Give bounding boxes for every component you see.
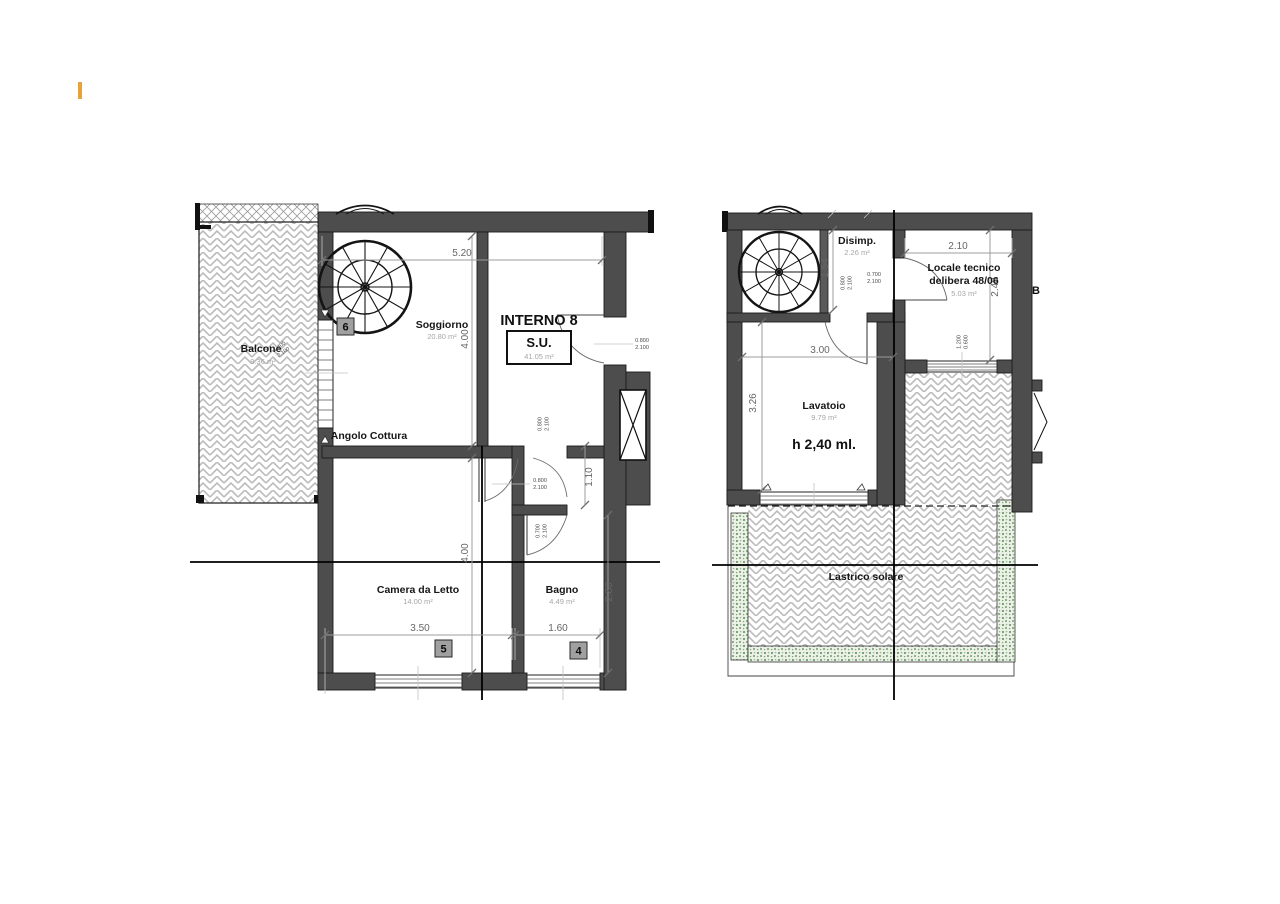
wall-top-right-plan [727,213,1032,230]
wall-camera-bagno [512,515,524,673]
wall-lavatoio-right [877,322,905,505]
wall-locale-bottom-2 [997,360,1012,373]
svg-text:5: 5 [440,644,446,656]
room-area-lavatoio: 9.79 m² [811,413,837,422]
svg-text:0.800: 0.800 [635,338,649,344]
neighbor-balcony-sliver [199,204,318,222]
dim-label-camera-width: 3.50 [410,623,430,634]
unit-title: INTERNO 8 [500,313,577,329]
wall-lavatoio-bottom-2 [868,490,877,505]
camera-window [375,666,462,700]
dim-label-bagno-height: 2.80 [604,582,615,602]
su-area: 41.05 m² [524,352,554,361]
svg-text:2.100: 2.100 [635,345,649,351]
planter-bottom [748,646,998,662]
room-area-disimp: 2.26 m² [844,248,870,257]
plan-upper-level: 2.10 2.40 1.54 3.00 3.26 Disimp. 2.26 m²… [712,207,1047,701]
wall-stairroom-bottom [727,313,830,322]
svg-text:0.700: 0.700 [867,272,881,278]
plan-interno-8: 5.20 4.00 4.00 3.50 1.60 1.10 2.80 Balco… [190,203,660,700]
room-label-bagno: Bagno [546,584,579,596]
svg-text:0.800: 0.800 [533,478,547,484]
svg-text:0.800: 0.800 [841,276,847,290]
badge-6: 6 [337,318,354,335]
room-area-soggiorno: 20.80 m² [427,332,457,341]
svg-text:0.600: 0.600 [964,335,970,349]
wall-bagno-top [512,505,567,515]
terrace-hatch-upper [905,373,1012,505]
svg-text:1.200: 1.200 [957,335,963,349]
room-label-soggiorno: Soggiorno [416,319,469,331]
planter-left [731,513,748,660]
dim-label-corridor: 1.10 [584,467,595,487]
room-label-lastrico: Lastrico solare [829,571,904,583]
room-area-bagno: 4.49 m² [549,597,575,606]
dim-label-lavatoio-height: 3.26 [748,393,759,413]
floorplan-page: 5.20 4.00 4.00 3.50 1.60 1.10 2.80 Balco… [0,0,1280,904]
room-area-locale: 5.03 m² [951,289,977,298]
dim-label-locale-width: 2.10 [948,241,968,252]
dimensions-left [318,232,612,694]
door-label-1: 0.800 2.100 [538,417,551,431]
door-label-entry: 0.800 2.100 [594,338,649,351]
door-label-r1: 0.800 2.100 [841,276,854,290]
neighbor-cut-elements [1032,380,1047,463]
wall-soggiorno-entry [477,232,488,446]
wall-kitchen-bedroom [322,446,512,458]
dim-label-camera-height: 4.00 [460,543,471,563]
badge-4: 4 [570,642,587,659]
svg-text:2.100: 2.100 [867,279,881,285]
svg-text:2.100: 2.100 [543,524,549,538]
room-label-camera: Camera da Letto [377,584,459,596]
door-label-3: 0.700 2.100 [536,524,549,538]
neighbor-room-label: B [1032,285,1040,297]
window-label-r3: 1.200 0.600 [957,335,970,349]
wall-left-lower [318,428,333,673]
dim-label-disimp-height: 1.54 [820,258,831,278]
door-label-r2: 0.700 2.100 [867,272,881,285]
svg-text:0.800: 0.800 [538,417,544,431]
room-label-locale: Locale tecnico [928,262,1001,274]
wall-right-right-plan [1012,230,1032,512]
wall-right-upper [604,232,626,317]
floorplan-canvas: 5.20 4.00 4.00 3.50 1.60 1.10 2.80 Balco… [0,0,1280,904]
wall-lavatoio-bottom-1 [727,490,760,505]
svg-text:2.100: 2.100 [533,485,547,491]
lavatoio-height-note: h 2,40 ml. [792,436,856,452]
badge-5: 5 [435,640,452,657]
dim-label-lavatoio-width: 3.00 [810,345,830,356]
room-label-angolo-cottura: Angolo Cottura [331,430,408,442]
room-area-camera: 14.00 m² [403,597,433,606]
svg-text:0.700: 0.700 [536,524,542,538]
svg-text:2.100: 2.100 [848,276,854,290]
room-label-lavatoio: Lavatoio [802,400,845,412]
dim-label-bagno-width: 1.60 [548,623,568,634]
wall-top [318,212,652,232]
wall-bottom-2 [462,673,527,690]
wall-bottom-1 [318,673,375,690]
room-label-disimp: Disimp. [838,235,876,247]
bagno-window [527,666,600,700]
svg-text:4: 4 [575,646,582,658]
dim-label-soggiorno-height: 4.00 [460,329,471,349]
svg-text:6: 6 [342,322,348,334]
planter-right [997,500,1015,662]
room-label-locale-2: delibera 48/06 [929,275,999,287]
dim-label-top-width: 5.20 [452,248,472,259]
room-area-balcone: 9.36 m² [250,357,276,366]
su-label: S.U. [526,335,551,350]
svg-text:2.100: 2.100 [545,417,551,431]
